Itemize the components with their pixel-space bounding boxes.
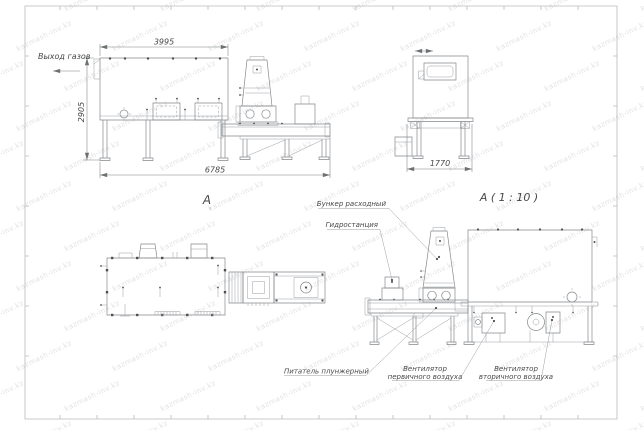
dim-top-width-text: 3995 [154,38,174,47]
view-a-scale-label: А ( 1 : 10 ) [479,191,538,204]
callout-fan-primary: Вентилятор первичного воздуха [388,320,495,381]
end-view-side-box [395,137,412,156]
gas-outlet-callout: Выход газов [38,52,91,71]
technical-drawing: 3995 2905 6785 Выход газов А [0,0,644,430]
detail-fan-primary [474,313,505,342]
feeder-support-frame [240,136,330,160]
feeder-label: Питатель плунжерный [284,368,369,376]
plan-top-stubs [119,244,207,258]
end-view-opening [419,63,457,80]
plan-feeder-top [274,272,325,303]
inspection-hatches [117,98,222,121]
fan-secondary-label-line1: Вентилятор [494,365,538,373]
detail-fan-secondary [528,312,561,342]
hopper-label: Бункер расходный [317,200,387,208]
dim-end-width-text: 1770 [430,159,450,168]
plan-edge-bolts [106,257,226,316]
fan-primary-label-line1: Вентилятор [403,365,447,373]
callout-hydro: Гидростанция [326,221,393,281]
plan-hopper-top [243,272,274,306]
view-a-title: А [202,193,211,210]
dimension-top-width: 3995 [100,38,228,57]
fan-primary-label-line2: первичного воздуха [388,373,463,381]
sheet-frame [25,6,617,419]
view-main-side: 3995 2905 6785 Выход газов А [38,38,330,211]
dimension-left-height: 2905 [77,58,100,160]
hydro-label: Гидростанция [326,221,378,229]
callout-hopper: Бункер расходный [317,200,438,260]
plan-inner-bolts [100,265,219,316]
detail-hopper-tower [419,228,468,312]
plan-bellows-flange [229,272,243,303]
gas-outlet-label: Выход газов [38,52,91,61]
callout-labels: Бункер расходный Гидростанция Питатель п… [284,200,553,381]
feed-hopper-tower [236,57,278,126]
feeder-tube [218,96,330,138]
view-detail [365,228,598,345]
view-end: 1770 А ( 1 : 10 ) [395,51,538,204]
drawing-sheet: kazmash-inv.kzkazmash-inv.kzkazmash-inv.… [0,0,644,430]
view-a-label: А [202,193,211,207]
view-plan [100,244,325,316]
dimension-total-length: 6785 [100,138,330,178]
combustion-chamber [94,57,228,160]
dim-total-length-text: 6785 [205,166,225,175]
detail-feeder-tube [365,298,468,318]
dim-left-height-text: 2905 [77,102,86,122]
